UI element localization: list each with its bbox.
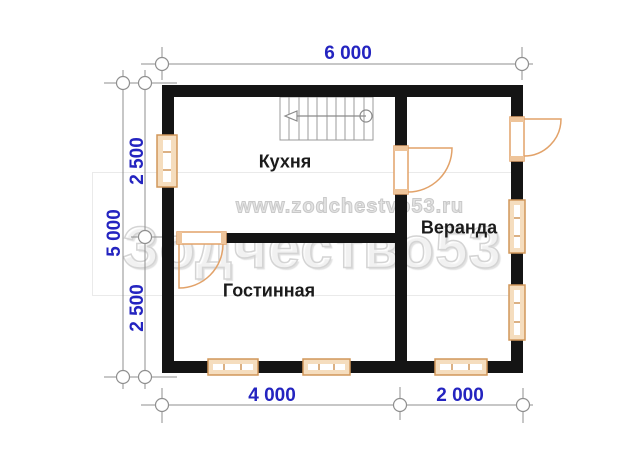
wall-partition-living <box>225 233 407 243</box>
wall-right-lower <box>511 160 523 373</box>
room-label-veranda: Веранда <box>421 218 497 239</box>
door-swing-arc <box>408 148 452 192</box>
dimension-left-upper: 2 500 <box>127 137 149 185</box>
door-swing-arc <box>179 244 223 288</box>
door-veranda <box>394 146 452 194</box>
room-label-living-room: Гостинная <box>223 281 315 302</box>
door-swing-arc <box>524 119 561 156</box>
stairs <box>280 97 373 140</box>
floor-plan: www.zodchestvo53.ru Зодчество53 <box>0 0 640 470</box>
dimension-bottom-right: 2 000 <box>436 385 484 407</box>
dimension-bottom-left: 4 000 <box>248 385 296 407</box>
wall-right-upper <box>511 85 523 118</box>
wall-top <box>162 85 523 97</box>
wall-partition-veranda-lower <box>395 193 407 373</box>
windows <box>157 135 525 375</box>
window-right-2 <box>509 285 525 340</box>
wall-left <box>162 85 174 373</box>
window-right-1 <box>509 200 525 253</box>
door-living-room <box>177 232 226 288</box>
plan-drawing <box>0 0 640 470</box>
window-bottom-veranda <box>435 359 487 375</box>
dimension-left-lower: 2 500 <box>127 284 149 332</box>
window-bottom-1 <box>208 359 258 375</box>
door-entrance <box>510 117 561 161</box>
dimension-top-width: 6 000 <box>324 43 372 65</box>
window-bottom-2 <box>303 359 350 375</box>
doors <box>177 117 561 288</box>
wall-partition-veranda-upper <box>395 85 407 147</box>
window-left <box>157 135 177 187</box>
dimension-left-total: 5 000 <box>104 209 126 257</box>
room-label-kitchen: Кухня <box>259 152 312 173</box>
